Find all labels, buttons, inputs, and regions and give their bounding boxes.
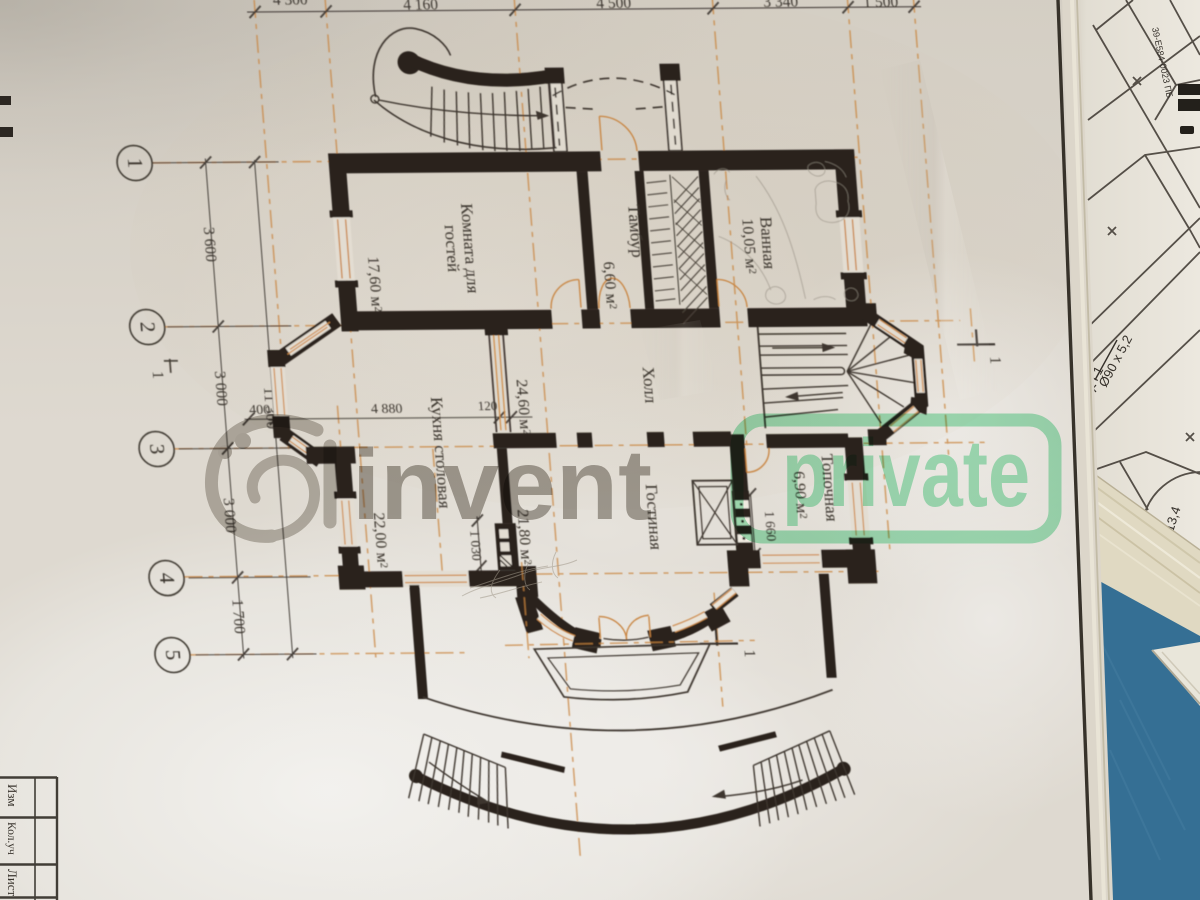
svg-text:Лист: Лист [5, 869, 20, 897]
svg-text:гостей: гостей [441, 225, 464, 272]
svg-text:3 600: 3 600 [200, 227, 220, 262]
svg-text:Ванная: Ванная [756, 217, 779, 270]
svg-text:3 000: 3 000 [211, 371, 231, 406]
svg-text:5: 5 [161, 650, 186, 661]
svg-text:4 880: 4 880 [370, 402, 403, 417]
svg-text:1: 1 [149, 371, 167, 379]
svg-text:1 500: 1 500 [863, 0, 899, 11]
svg-text:4 500: 4 500 [596, 0, 632, 12]
svg-text:4 300: 4 300 [272, 0, 308, 9]
svg-text:invent: invent [352, 429, 652, 541]
svg-text:4: 4 [155, 573, 180, 584]
svg-text:Кол.уч: Кол.уч [5, 822, 17, 855]
svg-text:1 700: 1 700 [228, 599, 248, 634]
svg-text:3: 3 [145, 444, 170, 455]
svg-text:3 340: 3 340 [763, 0, 799, 11]
svg-text:1: 1 [123, 158, 148, 169]
svg-text:Изм: Изм [5, 784, 20, 807]
svg-text:private: private [782, 420, 1030, 527]
svg-text:1: 1 [740, 649, 758, 657]
svg-text:2: 2 [135, 322, 160, 333]
svg-text:4 160: 4 160 [403, 0, 439, 14]
